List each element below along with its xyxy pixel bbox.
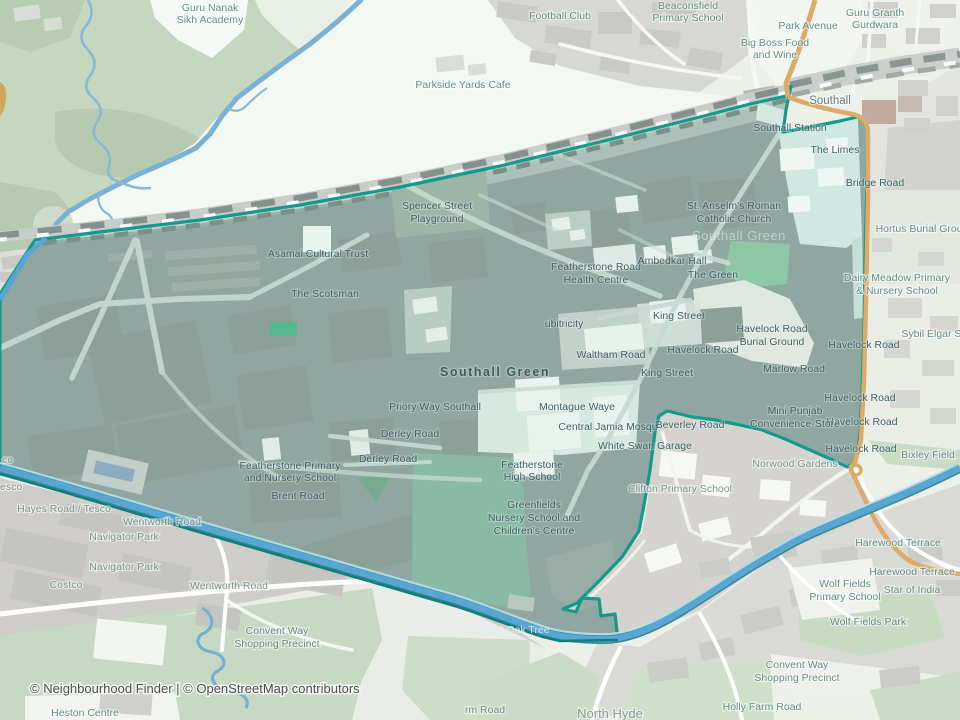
svg-text:North Hyde: North Hyde xyxy=(577,706,643,720)
svg-text:Greenfields: Greenfields xyxy=(507,499,561,511)
svg-text:Clifton Primary School: Clifton Primary School xyxy=(628,483,732,495)
svg-text:& Nursery School: & Nursery School xyxy=(856,285,938,297)
svg-text:Big Boss Food: Big Boss Food xyxy=(741,37,809,49)
svg-text:Primary School: Primary School xyxy=(809,591,880,603)
svg-text:Convenience-Store: Convenience-Store xyxy=(750,418,840,430)
svg-text:Wolf Fields Park: Wolf Fields Park xyxy=(830,616,907,628)
svg-text:Hortus Burial Groun: Hortus Burial Groun xyxy=(876,223,960,235)
svg-text:Beaconsfield: Beaconsfield xyxy=(658,0,718,12)
svg-text:esco: esco xyxy=(0,481,22,493)
svg-text:Beverley Road: Beverley Road xyxy=(656,419,725,431)
svg-text:Sybil Elgar Sc: Sybil Elgar Sc xyxy=(901,328,960,340)
svg-text:Gurdwara: Gurdwara xyxy=(852,19,898,31)
svg-text:Harewood Terrace: Harewood Terrace xyxy=(855,537,941,549)
svg-text:The Green: The Green xyxy=(688,269,738,281)
svg-text:Primary School: Primary School xyxy=(652,12,723,24)
svg-text:Bixley Field: Bixley Field xyxy=(901,449,955,461)
svg-text:rm Road: rm Road xyxy=(465,704,505,716)
svg-text:Marlow Road: Marlow Road xyxy=(763,363,825,375)
svg-text:Featherstone: Featherstone xyxy=(501,459,563,471)
svg-text:Costco: Costco xyxy=(50,579,83,591)
svg-text:Wentworth Road: Wentworth Road xyxy=(123,516,201,528)
svg-text:Shopping Precinct: Shopping Precinct xyxy=(754,672,839,684)
svg-text:Norwood Gardens: Norwood Gardens xyxy=(752,458,837,470)
svg-text:Havelock Road: Havelock Road xyxy=(824,392,895,404)
svg-text:Southall: Southall xyxy=(809,95,851,107)
svg-text:Dairy Meadow Primary: Dairy Meadow Primary xyxy=(844,272,951,284)
svg-text:Havelock Road: Havelock Road xyxy=(736,323,807,335)
svg-text:High School: High School xyxy=(504,471,561,483)
svg-text:Havelock Road: Havelock Road xyxy=(825,443,896,455)
svg-text:Wentworth Road: Wentworth Road xyxy=(190,580,268,592)
svg-text:Convent Way: Convent Way xyxy=(246,625,309,637)
svg-text:Nursery School and: Nursery School and xyxy=(488,512,580,524)
svg-text:Children's Centre: Children's Centre xyxy=(494,525,575,537)
svg-text:Waltham Road: Waltham Road xyxy=(576,349,645,361)
svg-text:ubitricity: ubitricity xyxy=(545,318,584,330)
svg-text:Burial Ground: Burial Ground xyxy=(740,336,805,348)
svg-text:Sikh Academy: Sikh Academy xyxy=(177,14,244,26)
svg-text:King Street: King Street xyxy=(641,367,693,379)
svg-text:The Scotsman: The Scotsman xyxy=(291,288,359,300)
svg-text:Asamai Cultural Trust: Asamai Cultural Trust xyxy=(268,248,368,260)
svg-text:Football Club: Football Club xyxy=(529,10,591,22)
svg-text:Hayes Road / Tesco: Hayes Road / Tesco xyxy=(17,503,111,515)
svg-text:Navigator Park: Navigator Park xyxy=(89,561,159,573)
svg-text:Derley Road: Derley Road xyxy=(359,453,418,465)
svg-text:King Street: King Street xyxy=(653,310,705,322)
svg-text:and Nursery School: and Nursery School xyxy=(244,472,336,484)
svg-text:Brent Road: Brent Road xyxy=(271,490,324,502)
svg-text:Heston Centre: Heston Centre xyxy=(51,707,119,719)
svg-text:Park Avenue: Park Avenue xyxy=(778,20,838,32)
svg-text:Southall Station: Southall Station xyxy=(753,122,827,134)
svg-text:Navigator Park: Navigator Park xyxy=(89,531,159,543)
svg-text:Featherstone Road: Featherstone Road xyxy=(551,261,641,273)
svg-text:Spencer Street: Spencer Street xyxy=(402,200,472,212)
svg-text:Health Centre: Health Centre xyxy=(564,274,629,286)
svg-text:Priory Way Southall: Priory Way Southall xyxy=(389,401,481,413)
svg-text:Southall Green: Southall Green xyxy=(440,365,550,379)
svg-text:© Neighbourhood Finder | © Ope: © Neighbourhood Finder | © OpenStreetMap… xyxy=(30,681,360,696)
svg-text:Star of India: Star of India xyxy=(884,584,941,596)
svg-text:Featherstone Primary: Featherstone Primary xyxy=(240,460,342,472)
svg-text:Derley Road: Derley Road xyxy=(381,428,440,440)
svg-text:Catholic Church: Catholic Church xyxy=(697,213,772,225)
svg-text:Southall Green: Southall Green xyxy=(692,228,786,243)
svg-text:Convent Way: Convent Way xyxy=(766,659,829,671)
svg-text:Ambedkar Hall: Ambedkar Hall xyxy=(638,255,707,267)
svg-text:Montague Waye: Montague Waye xyxy=(539,401,615,413)
svg-text:Havelock Road: Havelock Road xyxy=(667,344,738,356)
svg-text:The Limes: The Limes xyxy=(810,144,859,156)
svg-text:Bridge Road: Bridge Road xyxy=(846,177,905,189)
svg-text:Central Jamia Mosqu: Central Jamia Mosqu xyxy=(558,421,657,433)
svg-text:Parkside Yards Cafe: Parkside Yards Cafe xyxy=(415,79,510,91)
svg-text:Havelock Road: Havelock Road xyxy=(828,339,899,351)
svg-text:Playground: Playground xyxy=(410,213,463,225)
svg-text:Guru Granth: Guru Granth xyxy=(846,7,905,19)
svg-text:Shopping Precinct: Shopping Precinct xyxy=(234,638,319,650)
svg-text:Guru Nanak: Guru Nanak xyxy=(182,2,239,14)
svg-text:Holly Farm Road: Holly Farm Road xyxy=(723,701,802,713)
svg-text:Grand Oak Tree: Grand Oak Tree xyxy=(474,624,549,636)
svg-text:Mini Punjab: Mini Punjab xyxy=(768,405,823,417)
svg-text:co: co xyxy=(2,454,13,466)
svg-text:and Wine: and Wine xyxy=(753,49,798,61)
svg-text:White Swan Garage: White Swan Garage xyxy=(598,440,692,452)
svg-text:St. Anselm's Roman: St. Anselm's Roman xyxy=(687,200,781,212)
svg-text:Harewood Terrace: Harewood Terrace xyxy=(869,566,955,578)
svg-text:Wolf Fields: Wolf Fields xyxy=(819,578,871,590)
